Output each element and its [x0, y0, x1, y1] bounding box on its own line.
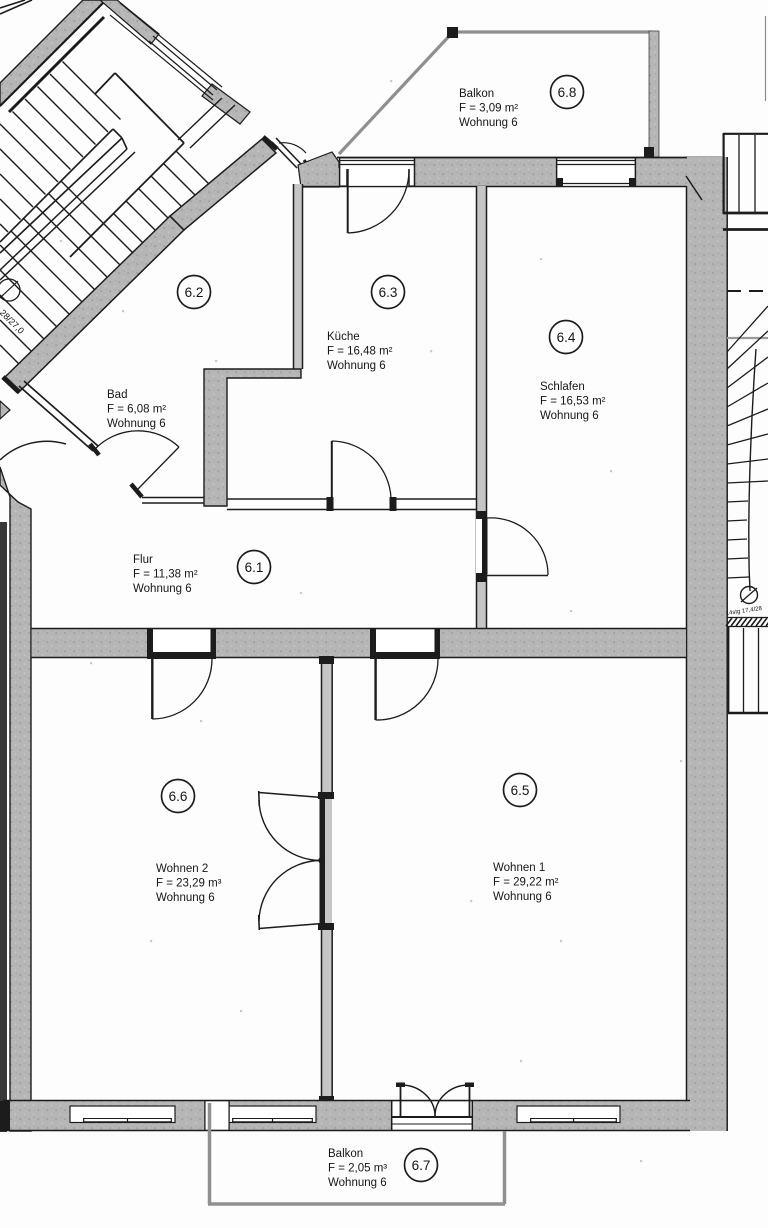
svg-text:6.5: 6.5 [511, 783, 530, 798]
svg-text:6.6: 6.6 [169, 789, 188, 804]
svg-text:F = 6,08 m²: F = 6,08 m² [107, 404, 166, 416]
svg-text:F = 2,05 m³: F = 2,05 m³ [328, 1163, 387, 1175]
svg-text:6.8: 6.8 [558, 85, 577, 100]
svg-text:Balkon: Balkon [328, 1148, 363, 1160]
svg-text:F = 16,48 m²: F = 16,48 m² [327, 346, 393, 358]
svg-text:6.7: 6.7 [412, 1158, 431, 1173]
svg-text:6.3: 6.3 [379, 285, 398, 300]
svg-text:6.2: 6.2 [185, 285, 204, 300]
svg-text:Balkon: Balkon [459, 88, 494, 100]
svg-text:Wohnung 6: Wohnung 6 [133, 583, 192, 595]
svg-text:Küche: Küche [327, 331, 360, 343]
svg-text:Wohnung 6: Wohnung 6 [540, 410, 599, 422]
svg-text:Wohnen 1: Wohnen 1 [493, 862, 545, 874]
svg-text:Wohnung 6: Wohnung 6 [459, 117, 518, 129]
svg-text:Schlafen: Schlafen [540, 381, 585, 393]
svg-text:Wohnung 6: Wohnung 6 [327, 360, 386, 372]
svg-text:Wohnung 6: Wohnung 6 [107, 418, 166, 430]
svg-text:F = 16,53 m²: F = 16,53 m² [540, 396, 606, 408]
svg-text:Flur: Flur [133, 554, 153, 566]
svg-text:Wohnung 6: Wohnung 6 [328, 1177, 387, 1189]
svg-text:Wohnung 6: Wohnung 6 [156, 892, 215, 904]
svg-text:Bad: Bad [107, 389, 127, 401]
svg-text:Wohnung 6: Wohnung 6 [493, 891, 552, 903]
svg-text:F = 29,22 m²: F = 29,22 m² [493, 877, 559, 889]
svg-text:F = 3,09 m²: F = 3,09 m² [459, 103, 518, 115]
svg-text:6.4: 6.4 [557, 330, 576, 345]
svg-text:F = 11,38 m²: F = 11,38 m² [133, 569, 198, 581]
svg-text:F = 23,29 m³: F = 23,29 m³ [156, 878, 222, 890]
svg-text:Wohnen 2: Wohnen 2 [156, 863, 208, 875]
svg-text:6.1: 6.1 [245, 560, 264, 575]
